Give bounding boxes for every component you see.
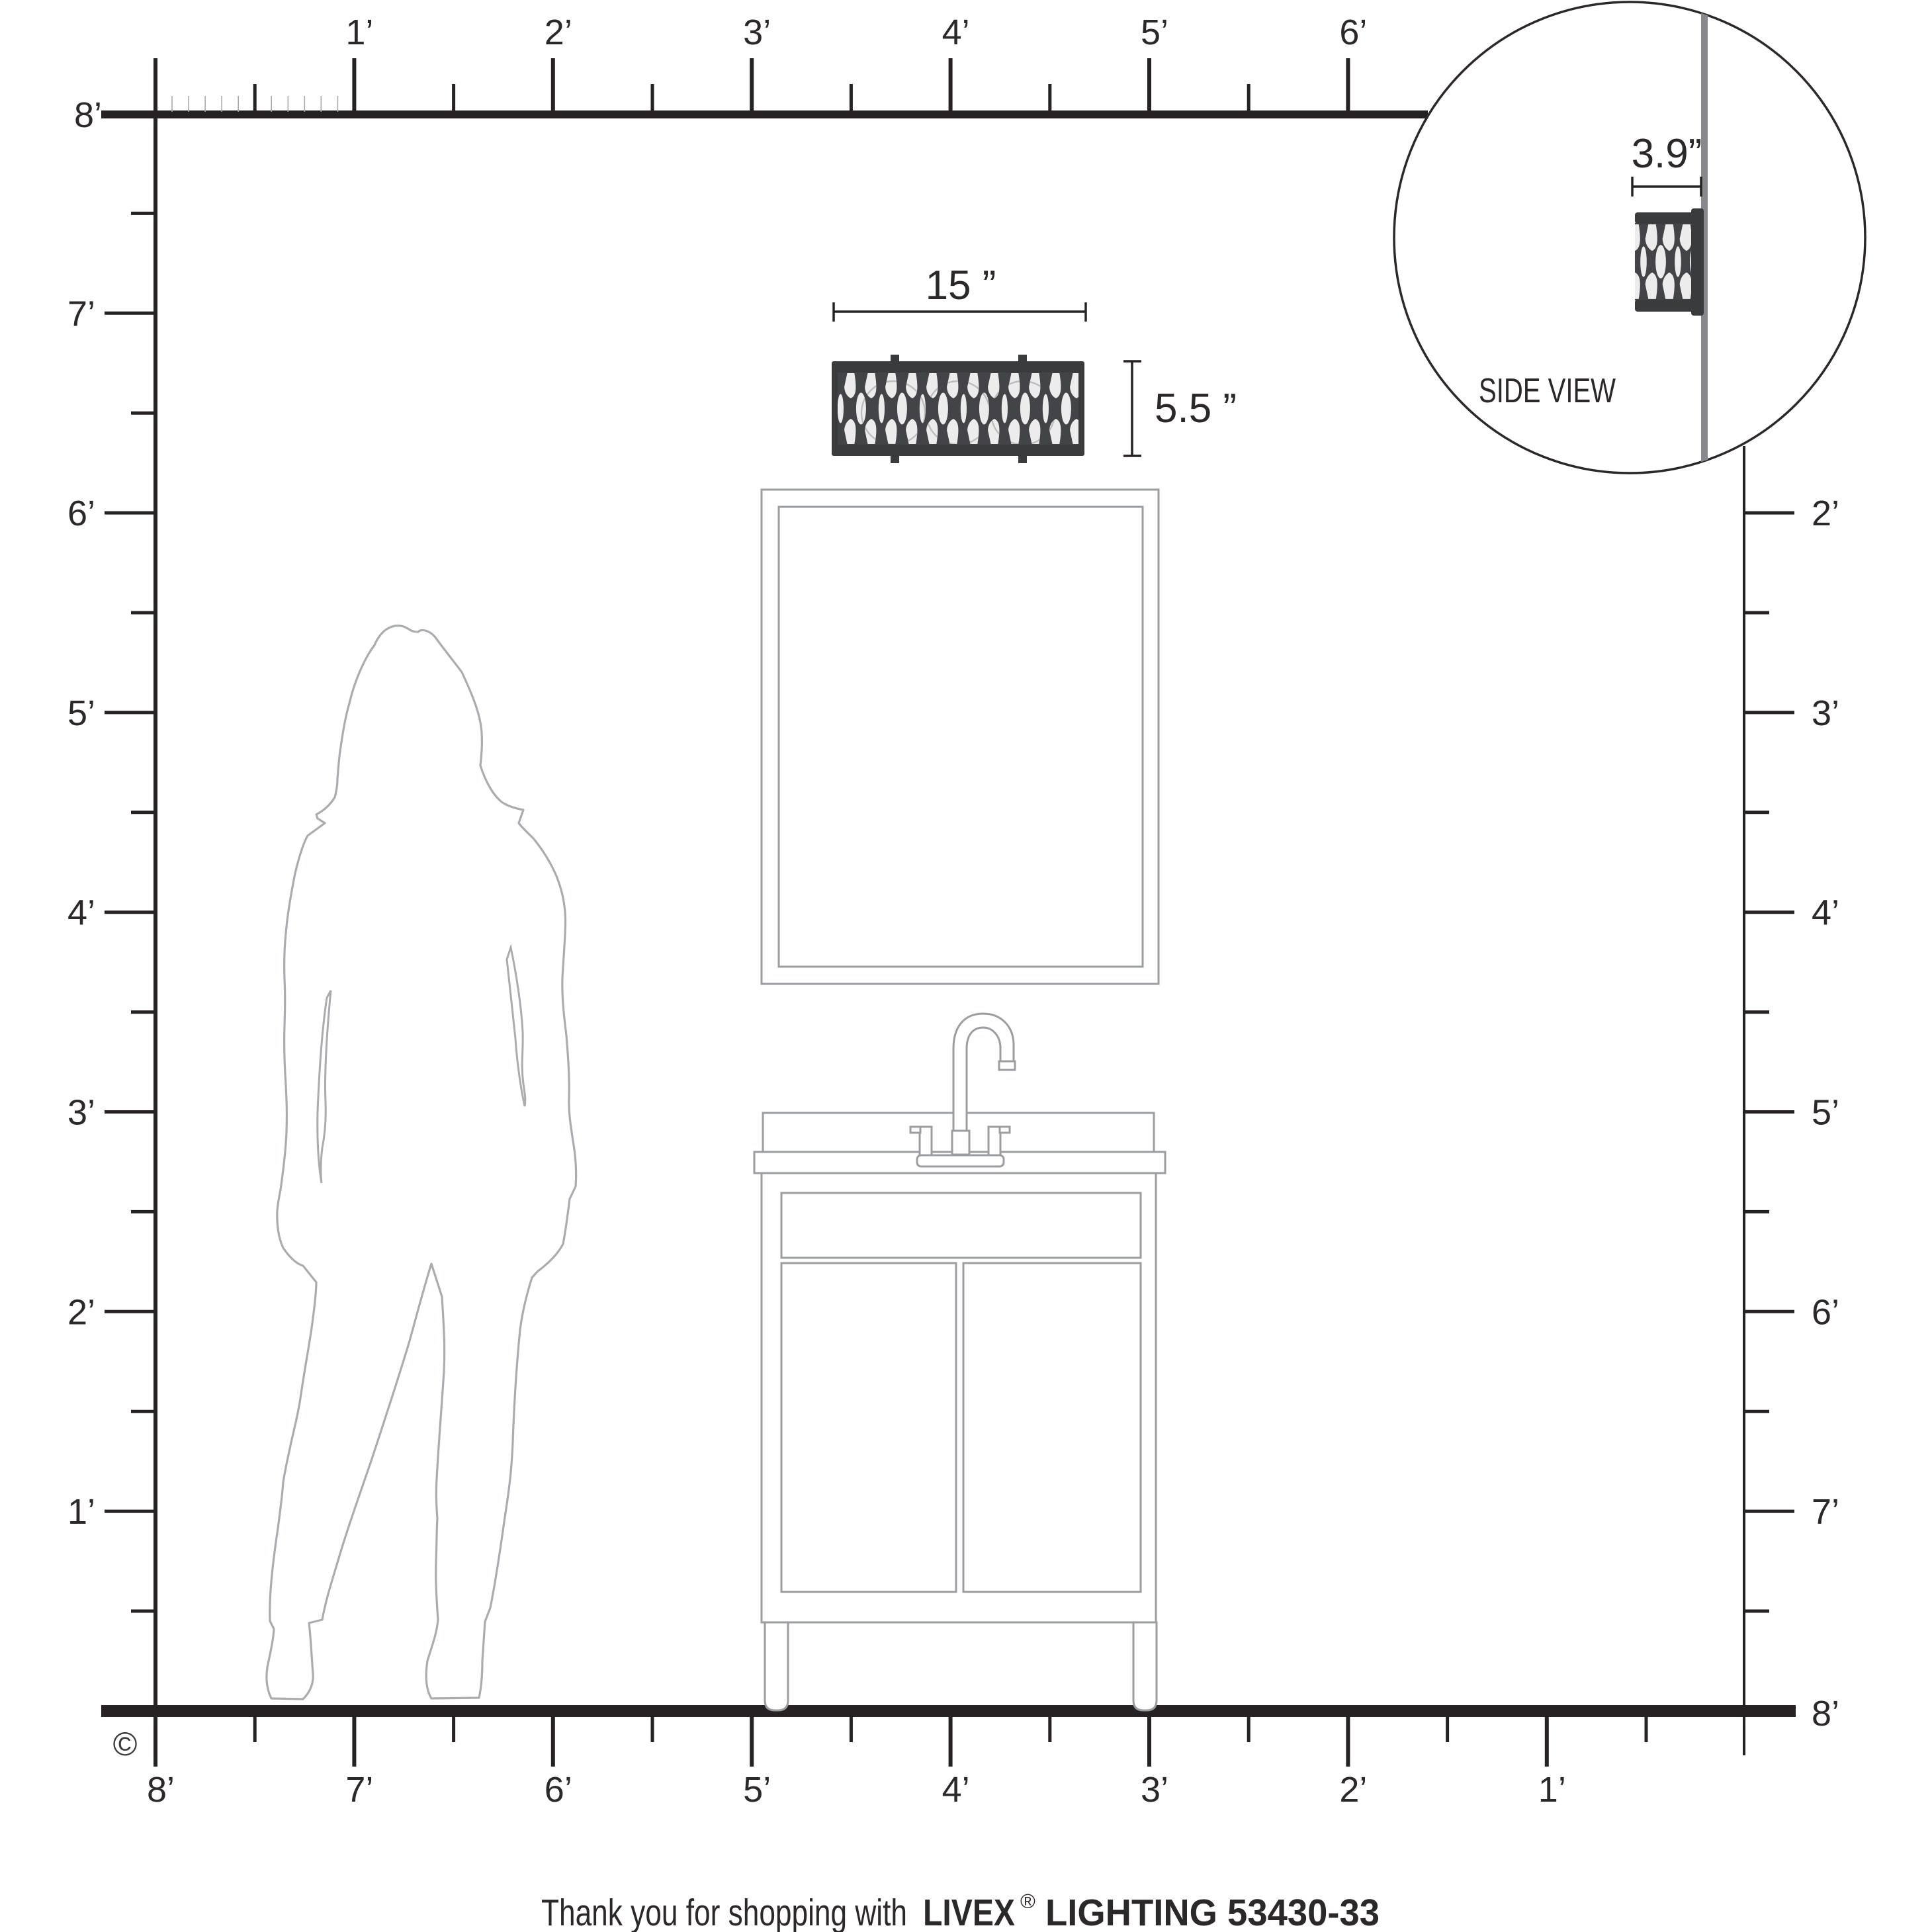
svg-text:1’: 1’ bbox=[345, 13, 373, 52]
svg-text:8’: 8’ bbox=[147, 1770, 175, 1810]
svg-text:6’: 6’ bbox=[1339, 13, 1367, 52]
svg-text:5’: 5’ bbox=[1812, 1093, 1839, 1133]
svg-text:5’: 5’ bbox=[743, 1770, 771, 1810]
svg-text:4’: 4’ bbox=[1812, 893, 1839, 933]
svg-text:SIDE VIEW: SIDE VIEW bbox=[1479, 372, 1616, 410]
svg-text:LIGHTING 53430-33: LIGHTING 53430-33 bbox=[1045, 1892, 1380, 1932]
svg-text:3’: 3’ bbox=[743, 13, 771, 52]
svg-text:4’: 4’ bbox=[942, 1770, 970, 1810]
svg-text:6’: 6’ bbox=[545, 1770, 572, 1810]
svg-text:6’: 6’ bbox=[1812, 1292, 1839, 1332]
svg-text:7’: 7’ bbox=[67, 294, 95, 333]
svg-text:4’: 4’ bbox=[942, 13, 970, 52]
svg-text:1’: 1’ bbox=[67, 1492, 95, 1532]
svg-text:4’: 4’ bbox=[67, 893, 95, 933]
svg-text:5’: 5’ bbox=[67, 693, 95, 733]
svg-text:5’: 5’ bbox=[1141, 13, 1168, 52]
svg-text:8’: 8’ bbox=[1812, 1694, 1839, 1734]
svg-text:©: © bbox=[113, 1726, 138, 1763]
svg-text:2’: 2’ bbox=[67, 1292, 95, 1332]
svg-text:2’: 2’ bbox=[1812, 494, 1839, 533]
svg-text:2’: 2’ bbox=[545, 13, 572, 52]
svg-text:3’: 3’ bbox=[1812, 693, 1839, 733]
svg-text:6’: 6’ bbox=[67, 494, 95, 533]
svg-text:LIVEX: LIVEX bbox=[923, 1892, 1015, 1932]
svg-text:7’: 7’ bbox=[1812, 1492, 1839, 1532]
svg-text:8’: 8’ bbox=[74, 95, 102, 135]
svg-text:2’: 2’ bbox=[1339, 1770, 1367, 1810]
svg-text:5.5 ”: 5.5 ” bbox=[1155, 386, 1237, 431]
svg-text:1’: 1’ bbox=[1538, 1770, 1566, 1810]
svg-text:3.9”: 3.9” bbox=[1632, 131, 1702, 177]
svg-text:3’: 3’ bbox=[1141, 1770, 1168, 1810]
svg-text:®: ® bbox=[1020, 1890, 1035, 1913]
svg-text:Thank you for shopping with: Thank you for shopping with bbox=[541, 1892, 907, 1932]
svg-text:3’: 3’ bbox=[67, 1093, 95, 1133]
svg-text:15 ”: 15 ” bbox=[926, 263, 996, 308]
svg-text:7’: 7’ bbox=[345, 1770, 373, 1810]
